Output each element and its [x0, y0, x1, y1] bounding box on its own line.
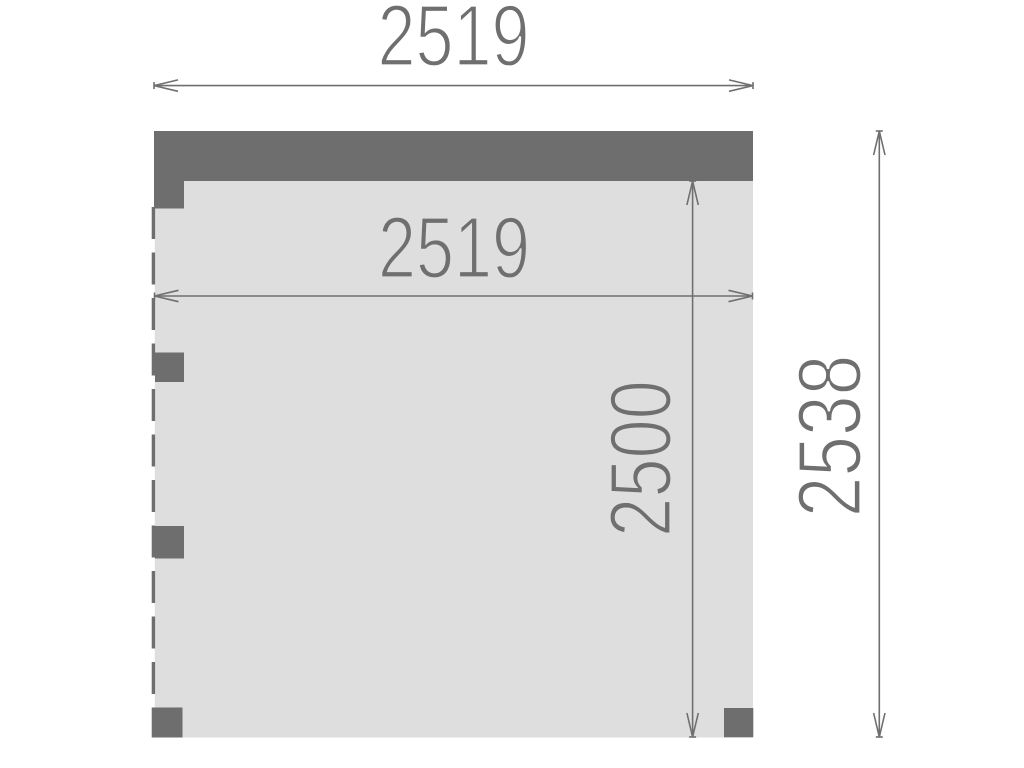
svg-text:2519: 2519: [378, 199, 530, 297]
svg-text:2500: 2500: [591, 380, 689, 537]
svg-text:2538: 2538: [780, 355, 880, 518]
svg-text:2519: 2519: [378, 0, 530, 85]
